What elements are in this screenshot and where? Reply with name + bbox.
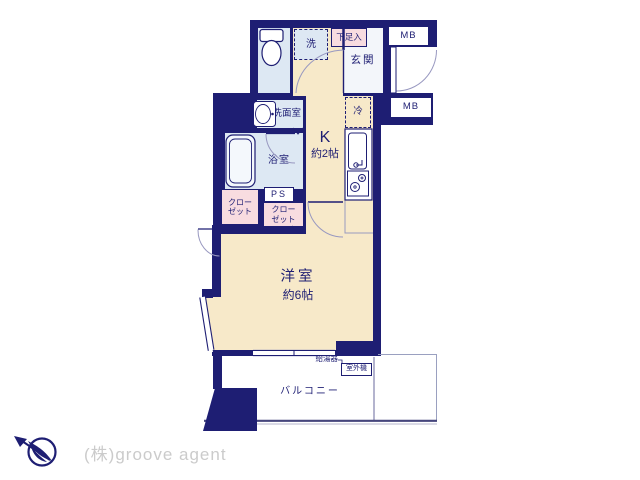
wall-kitchen-right — [373, 93, 381, 237]
meter-box-bottom: MB — [389, 96, 433, 119]
ac-outdoor-unit-label: 室外機 — [346, 365, 367, 373]
bay-cut-mask — [193, 291, 213, 352]
western-room-size-label: 約6帖 — [283, 289, 314, 303]
closet-left: クロー ゼット — [222, 190, 258, 224]
room-western-lower-strip — [221, 341, 336, 350]
refrigerator-space: 冷 — [345, 97, 371, 128]
meter-box-label: MB — [403, 102, 419, 113]
wall-western-left — [212, 225, 221, 303]
shoe-cupboard: 下足入 — [331, 28, 367, 47]
refrigerator-label: 冷 — [353, 107, 363, 118]
kitchen-label-group: K 約2帖 — [300, 125, 350, 165]
entrance-label: 玄関 — [351, 54, 376, 66]
western-room-label-group: 洋室 約6帖 — [238, 262, 358, 310]
meter-box-label: MB — [400, 31, 416, 42]
wall-balcony-stub — [213, 352, 222, 389]
closet-label-line1: クロー — [272, 205, 296, 214]
balcony-label: バルコニー — [260, 385, 360, 399]
pipe-space-label: PS — [271, 189, 287, 199]
closet-label-line2: ゼット — [228, 207, 252, 216]
north-compass-icon — [14, 436, 56, 466]
wall-western-right — [373, 225, 381, 356]
ac-outdoor-unit: 室外機 — [341, 363, 372, 376]
wall-bottom-right-block — [336, 340, 378, 356]
kitchen-label: K — [320, 129, 331, 147]
water-heater-label-text: 給湯器 — [316, 355, 339, 364]
room-washroom: 洗面室 — [257, 100, 303, 128]
shoe-cupboard-label: 下足入 — [336, 33, 362, 43]
room-toilet — [258, 28, 290, 93]
bathroom-label: 浴室 — [268, 155, 290, 167]
entrance-door-recess — [391, 47, 433, 93]
pipe-space: PS — [264, 187, 294, 202]
bay-window-glass — [203, 297, 212, 350]
balcony-label-text: バルコニー — [280, 386, 340, 398]
water-heater-label: 給湯器 — [298, 355, 338, 364]
laundry-label: 洗 — [306, 39, 316, 51]
kitchen-size-label: 約2帖 — [311, 148, 339, 161]
bay-window-line — [200, 298, 209, 351]
company-logo-text: (株)groove agent — [84, 440, 227, 465]
room-bathroom: 浴室 — [225, 133, 303, 189]
balcony-wall-block — [203, 388, 257, 431]
meter-box-top: MB — [387, 25, 430, 47]
closet-label-line1: クロー — [228, 198, 252, 207]
bay-floor — [204, 297, 221, 350]
laundry-space: 洗 — [294, 29, 328, 60]
floor-plan-page: 玄関 洗 下足入 MB MB 冷 洗面室 浴室 クロー ゼット PS クロー ゼ… — [0, 0, 640, 480]
company-name: (株)groove agent — [84, 445, 227, 464]
western-room-label: 洋室 — [281, 269, 316, 286]
closet-label-line2: ゼット — [272, 215, 296, 224]
closet-right: クロー ゼット — [264, 203, 303, 226]
washroom-label: 洗面室 — [272, 109, 301, 120]
bay-window-line — [205, 296, 214, 349]
